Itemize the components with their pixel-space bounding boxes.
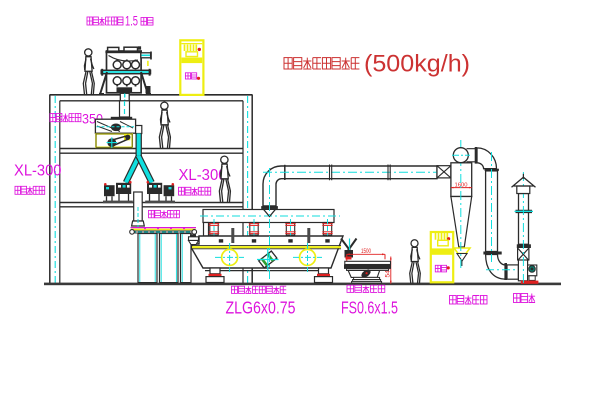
svg-text:1500: 1500 xyxy=(361,249,371,255)
svg-text:ZLG6x0.75: ZLG6x0.75 xyxy=(226,298,296,318)
svg-text:XL-300: XL-300 xyxy=(179,167,227,184)
svg-text:1.5: 1.5 xyxy=(125,14,138,29)
svg-text:(500kg/h): (500kg/h) xyxy=(364,51,470,78)
svg-text:FS0.6x1.5: FS0.6x1.5 xyxy=(341,298,398,318)
svg-text:XL-300: XL-300 xyxy=(14,163,62,180)
